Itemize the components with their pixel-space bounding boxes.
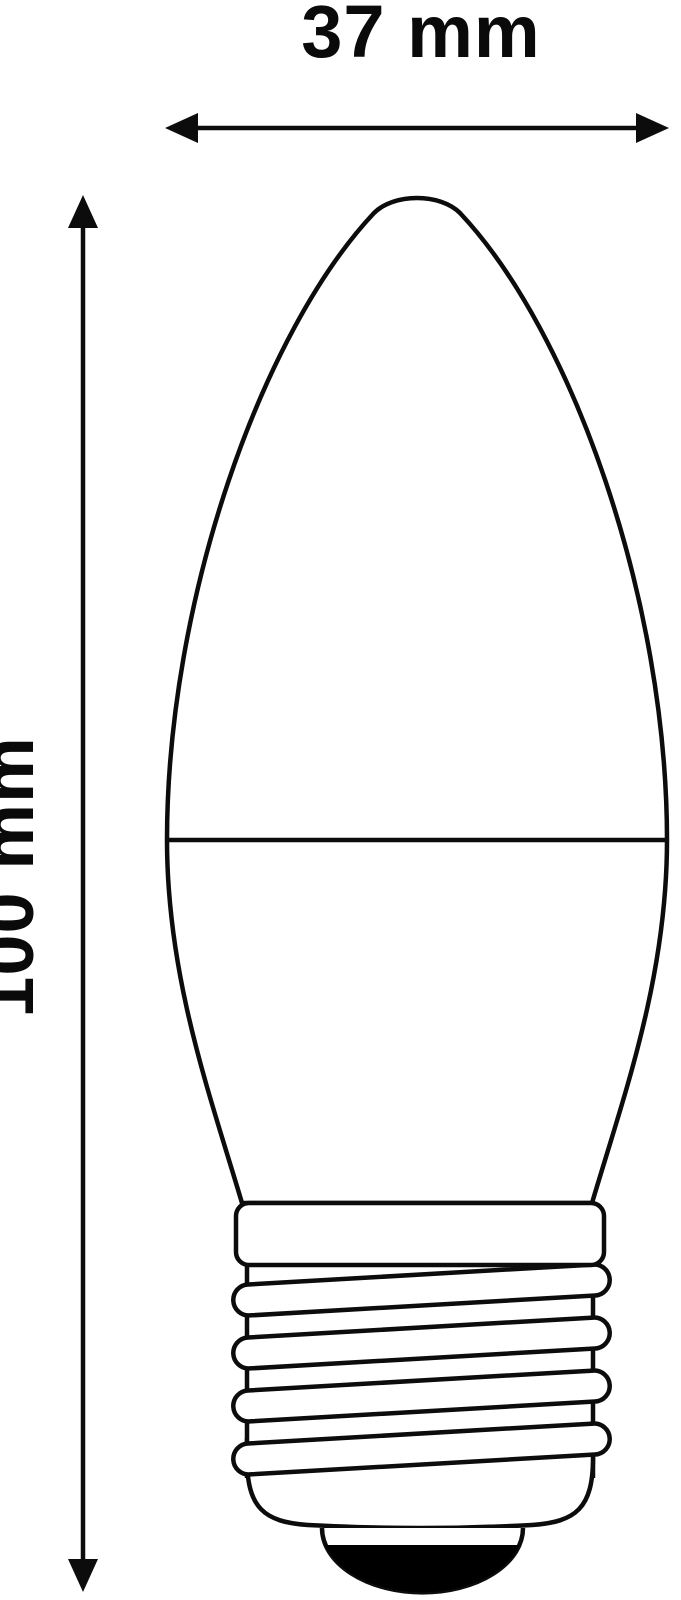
glass-envelope bbox=[167, 198, 667, 1203]
height-dimension-label: 100 mm bbox=[0, 736, 49, 1018]
horizontal-double-arrow-icon bbox=[165, 113, 669, 143]
width-dimension-label: 37 mm bbox=[301, 0, 540, 73]
contact-tip-black-fill bbox=[300, 1545, 545, 1597]
diagram-canvas: 37 mm 100 mm bbox=[0, 0, 681, 1600]
bulb-figure bbox=[167, 198, 667, 1597]
arrowhead-up-icon bbox=[68, 195, 98, 228]
arrowhead-left-icon bbox=[165, 113, 198, 143]
width-dimension: 37 mm bbox=[165, 0, 669, 143]
bulb-technical-drawing: 37 mm 100 mm bbox=[0, 0, 681, 1600]
height-dimension: 100 mm bbox=[0, 195, 98, 1592]
vertical-double-arrow-icon bbox=[68, 195, 98, 1592]
base-collar bbox=[236, 1203, 604, 1265]
arrowhead-right-icon bbox=[636, 113, 669, 143]
arrowhead-down-icon bbox=[68, 1559, 98, 1592]
